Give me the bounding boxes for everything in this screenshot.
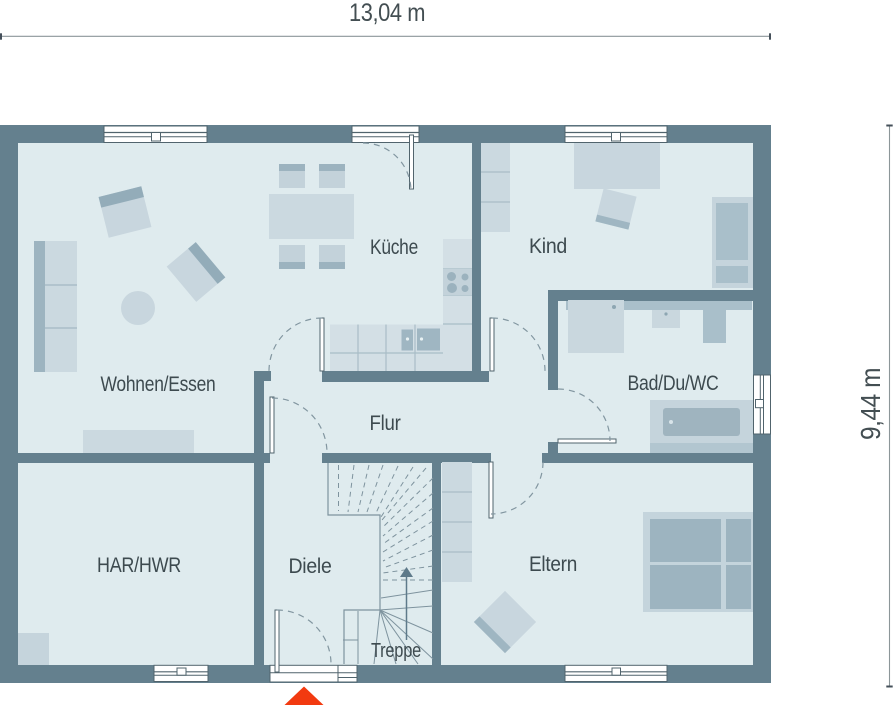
svg-text:Wohnen/Essen: Wohnen/Essen <box>101 373 216 396</box>
svg-text:Eltern: Eltern <box>529 553 577 576</box>
svg-text:13,04 m: 13,04 m <box>349 0 425 27</box>
svg-text:Diele: Diele <box>289 555 332 578</box>
svg-text:Kind: Kind <box>529 235 567 258</box>
svg-text:HAR/HWR: HAR/HWR <box>97 554 181 577</box>
svg-text:Bad/Du/WC: Bad/Du/WC <box>628 372 719 395</box>
svg-text:9,44 m: 9,44 m <box>855 368 886 440</box>
svg-text:Flur: Flur <box>370 412 401 435</box>
svg-text:Küche: Küche <box>370 236 418 259</box>
svg-text:Treppe: Treppe <box>371 640 421 662</box>
